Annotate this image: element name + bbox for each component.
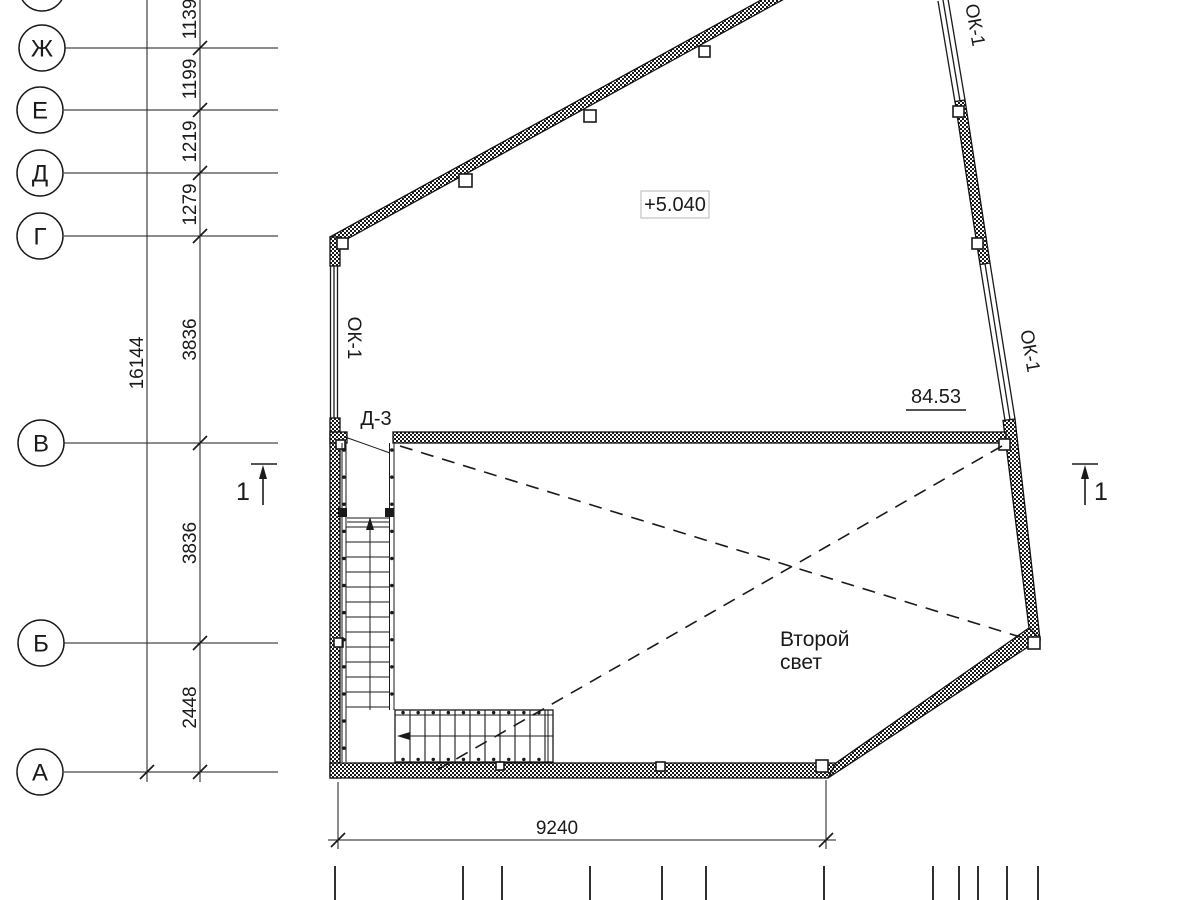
stair-up-arrowhead <box>366 517 374 530</box>
wall-right-lower <box>1003 419 1040 639</box>
dim-overall-16144: 16144 <box>127 336 148 389</box>
door-label: Д-3 <box>360 408 391 430</box>
void-label: Второй свет <box>780 628 849 674</box>
axis-bubble-v: В <box>18 420 64 466</box>
floor-plan-drawing: Ж Е Д Г В Б А <box>0 0 1200 900</box>
dim-segment-3836-lower: 3836 <box>180 522 201 564</box>
window-right-top-ok1 <box>938 0 965 102</box>
axis-bubble-cut <box>19 0 65 11</box>
level-mark-value: +5.040 <box>644 194 706 216</box>
window-right-mid-ok1 <box>980 263 1015 420</box>
window-label-right-mid: ОК-1 <box>1015 328 1043 374</box>
area-mark-value: 84.53 <box>911 386 961 408</box>
stair-left-arrowhead <box>397 732 410 740</box>
dim-segment-1279: 1279 <box>180 183 201 225</box>
axis-label-d: Д <box>32 161 48 188</box>
axis-bubble-e: Е <box>17 87 63 133</box>
level-mark: +5.040 <box>641 191 709 218</box>
dim-segment-1199: 1199 <box>180 59 201 100</box>
dim-segment-3836-upper: 3836 <box>180 318 201 360</box>
section-arrowhead-left <box>259 465 267 479</box>
window-label-left: ОК-1 <box>343 317 364 360</box>
wall-top-diagonal <box>330 0 786 246</box>
dim-bottom-9240: 9240 <box>536 818 578 839</box>
void-label-line1: Второй <box>780 628 849 651</box>
section-arrowhead-right <box>1081 465 1089 479</box>
dim-segment-2448: 2448 <box>180 686 201 728</box>
floor-plan-sheet: Ж Е Д Г В Б А <box>0 0 1200 900</box>
window-left-ok1 <box>331 265 338 418</box>
left-dimension-column: 1139 1199 1219 1279 3836 3836 2448 16144 <box>127 0 207 779</box>
axis-label-zh: Ж <box>31 36 53 63</box>
axis-bubble-b: Б <box>18 620 64 666</box>
area-mark: 84.53 <box>906 386 966 410</box>
wall-bottom-right-diagonal <box>828 628 1040 778</box>
section-number-left: 1 <box>236 478 250 506</box>
section-marks: 1 1 <box>236 464 1108 506</box>
dim-segment-1139: 1139 <box>180 0 201 39</box>
axis-bubble-d: Д <box>17 150 63 196</box>
section-mark-left: 1 <box>236 464 277 506</box>
axis-label-v: В <box>33 431 49 458</box>
wall-interior-void <box>393 432 1006 443</box>
landing-post-left <box>338 508 347 517</box>
text-labels: +5.040 84.53 Д-3 ОК-1 ОК-1 ОК-1 Второй с… <box>343 2 1043 674</box>
axis-label-b: Б <box>33 631 49 658</box>
column-markers <box>334 46 1040 772</box>
wall-bottom <box>330 763 836 778</box>
wall-left-lower <box>330 418 340 778</box>
axis-bubble-a: А <box>17 749 63 795</box>
staircase <box>338 437 553 762</box>
axis-label-e: Е <box>32 98 48 125</box>
void-label-line2: свет <box>780 651 822 674</box>
bottom-dimension: 9240 <box>328 780 836 849</box>
axis-bubble-g: Г <box>17 213 63 259</box>
axis-grid: Ж Е Д Г В Б А <box>17 0 278 795</box>
lower-drawing-extension-ticks <box>335 866 1038 900</box>
window-label-right-top: ОК-1 <box>960 2 988 48</box>
landing-post-right <box>385 508 394 517</box>
axis-label-g: Г <box>34 224 47 251</box>
dim-segment-1219: 1219 <box>180 120 201 162</box>
axis-bubble-zh: Ж <box>19 25 65 71</box>
axis-label-a: А <box>32 760 48 787</box>
stair-treads-vertical-flight <box>346 527 390 707</box>
void-dashed-lines <box>400 446 1030 770</box>
door-swing-line <box>345 437 390 453</box>
section-number-right: 1 <box>1094 478 1108 506</box>
section-mark-right: 1 <box>1072 464 1108 506</box>
